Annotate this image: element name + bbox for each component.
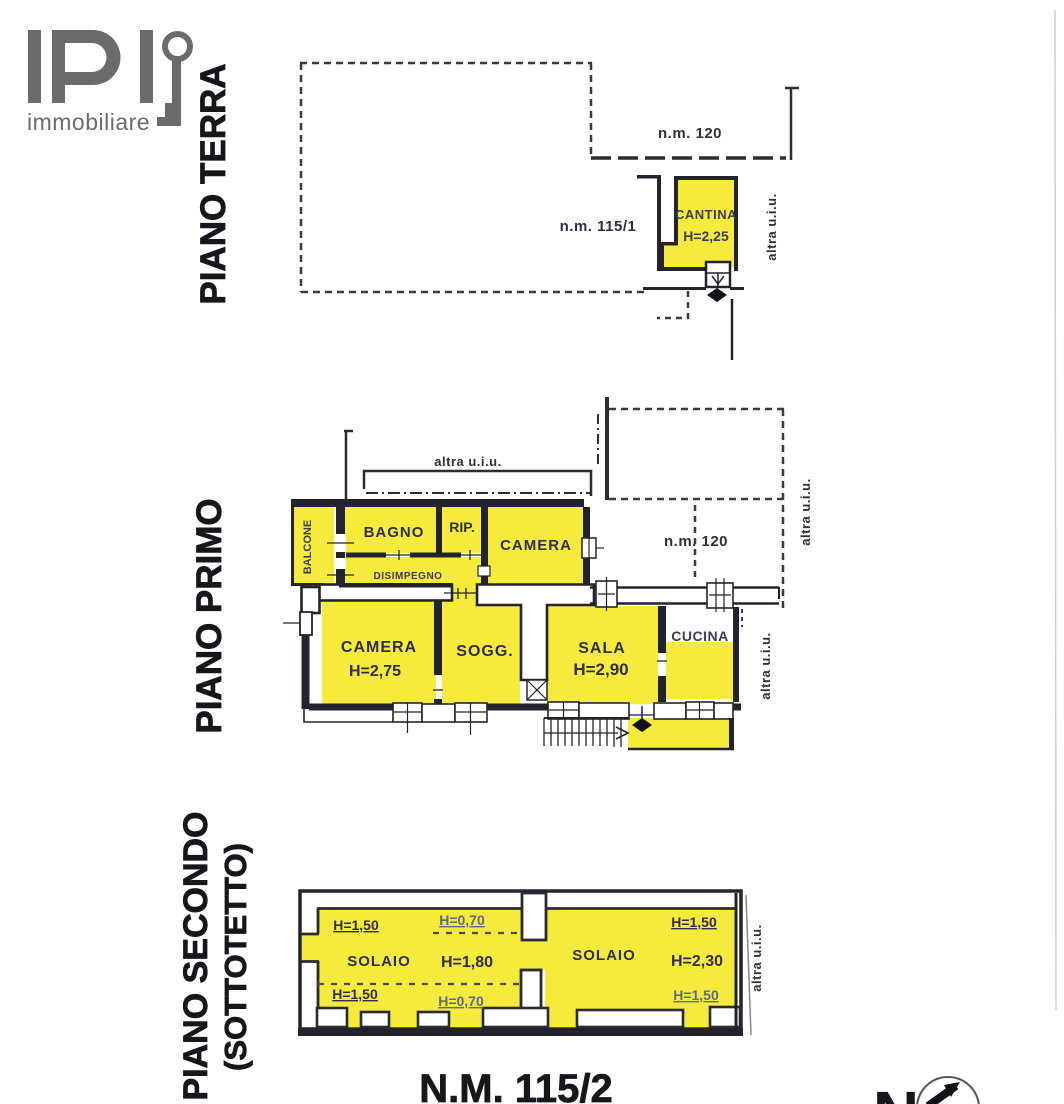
svg-text:BALCONE: BALCONE <box>302 520 314 574</box>
svg-text:H=2,30: H=2,30 <box>671 953 723 970</box>
svg-text:N.M. 115/2: N.M. 115/2 <box>419 1067 612 1104</box>
svg-text:H=2,25: H=2,25 <box>683 228 729 244</box>
svg-text:H=1,50: H=1,50 <box>333 917 379 933</box>
svg-text:PIANO SECONDO: PIANO SECONDO <box>177 811 215 1100</box>
svg-text:CAMERA: CAMERA <box>341 639 417 656</box>
svg-text:altra u.i.u.: altra u.i.u. <box>434 454 501 469</box>
svg-text:n.m. 120: n.m. 120 <box>658 125 722 142</box>
svg-text:PIANO TERRA: PIANO TERRA <box>194 63 233 304</box>
svg-text:n.m. 115/1: n.m. 115/1 <box>560 218 637 235</box>
svg-text:H=2,90: H=2,90 <box>573 660 628 679</box>
svg-text:n.m. 120: n.m. 120 <box>664 533 728 550</box>
svg-text:H=1,50: H=1,50 <box>673 987 719 1003</box>
svg-text:H=2,75: H=2,75 <box>349 663 401 680</box>
svg-text:H=1,50: H=1,50 <box>671 914 717 930</box>
svg-text:DISIMPEGNO: DISIMPEGNO <box>374 571 443 582</box>
svg-text:SOLAIO: SOLAIO <box>572 947 636 964</box>
svg-text:SALA: SALA <box>578 640 626 657</box>
svg-text:CANTINA: CANTINA <box>675 207 737 222</box>
svg-text:SOGG.: SOGG. <box>456 643 513 660</box>
svg-text:immobiliare: immobiliare <box>27 109 150 135</box>
svg-text:altra u.i.u.: altra u.i.u. <box>798 478 813 545</box>
svg-text:SOLAIO: SOLAIO <box>347 953 411 970</box>
svg-text:altra u.i.u.: altra u.i.u. <box>764 193 779 260</box>
svg-text:(SOTTOTETTO): (SOTTOTETTO) <box>218 843 253 1071</box>
svg-text:CAMERA: CAMERA <box>500 537 572 554</box>
svg-text:H=1,80: H=1,80 <box>441 954 493 971</box>
svg-text:H=1,50: H=1,50 <box>332 986 378 1002</box>
svg-text:altra u.i.u.: altra u.i.u. <box>758 632 773 699</box>
svg-text:BAGNO: BAGNO <box>364 524 425 541</box>
svg-text:altra u.i.u.: altra u.i.u. <box>749 924 764 991</box>
svg-text:N: N <box>873 1078 919 1104</box>
svg-text:H=0,70: H=0,70 <box>438 993 484 1009</box>
svg-text:H=0,70: H=0,70 <box>439 912 485 928</box>
svg-text:RIP.: RIP. <box>449 519 474 535</box>
svg-text:CUCINA: CUCINA <box>671 628 728 644</box>
svg-text:PIANO PRIMO: PIANO PRIMO <box>190 498 229 733</box>
